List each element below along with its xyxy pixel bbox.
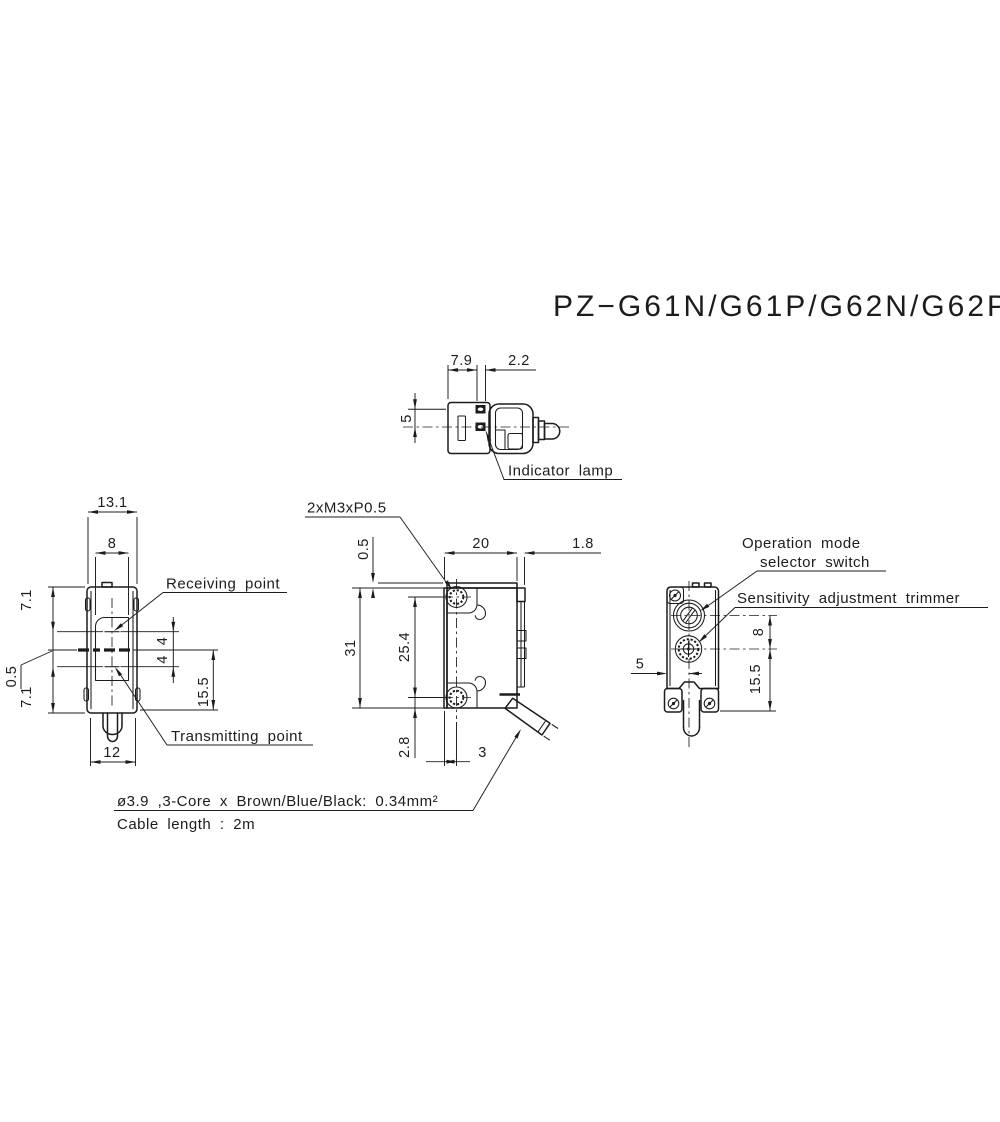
dim-25-4: 25.4 [397, 632, 413, 662]
drawing-sheet: PZ−G61N/G61P/G62N/G62P 7.9 2.2 [0, 0, 1000, 1122]
dim-2-8: 2.8 [397, 736, 413, 758]
dim-7-9: 7.9 [451, 353, 473, 369]
side-view-dimensions: 0.5 20 1.8 31 25.4 2.8 [343, 536, 601, 766]
top-view-gland-collar [533, 418, 539, 443]
dim-12: 12 [103, 745, 120, 761]
dim-5: 5 [399, 414, 415, 423]
cable-spec-text: ø3.9 ,3-Core x Brown/Blue/Black: 0.34mm² [117, 793, 438, 810]
dim-7-1-top: 7.1 [19, 589, 35, 611]
rear-view-dimensions: 5 8 15.5 [631, 616, 776, 712]
side-view: 2xM3xP0.5 0.5 20 1.8 31 [305, 500, 601, 767]
side-view-back-tab [517, 588, 525, 602]
operation-mode-label-line1: Operation mode [742, 535, 861, 552]
rear-view-cable [684, 728, 700, 737]
top-view-housing-inner [496, 408, 523, 450]
dim-15-5-front: 15.5 [196, 677, 212, 707]
top-view-cable-stub [545, 424, 560, 440]
receiving-point-callout: Receiving point [114, 576, 287, 632]
dim-7-1-bottom: 7.1 [19, 686, 35, 708]
indicator-lamp-label: Indicator lamp [508, 463, 613, 480]
dim-2-2: 2.2 [508, 353, 530, 369]
transmitting-point-label: Transmitting point [171, 728, 303, 745]
dim-31: 31 [343, 639, 359, 656]
indicator-lamp-1-lens [478, 407, 484, 411]
dim-4-upper: 4 [155, 637, 171, 646]
front-view-top-tab [102, 583, 112, 588]
cable-length-text: Cable length : 2m [117, 816, 255, 833]
operation-mode-label-line2: selector switch [760, 554, 870, 571]
rear-view-bottom-edge [667, 682, 719, 689]
dim-1-8: 1.8 [572, 536, 594, 552]
dim-3: 3 [478, 745, 487, 761]
front-view: 13.1 8 7.1 7.1 0.5 [4, 495, 313, 766]
front-view-dimensions: 13.1 8 7.1 7.1 0.5 [4, 495, 218, 766]
rear-view: 5 8 15.5 Operation mode selector switch … [631, 535, 988, 748]
front-view-cable [108, 713, 118, 742]
side-view-top-lip [447, 583, 517, 588]
top-view-housing-cutout [508, 434, 523, 450]
page-title: PZ−G61N/G61P/G62N/G62P [553, 290, 1000, 323]
receiving-point-label: Receiving point [166, 576, 280, 593]
dim-0-5-axis: 0.5 [4, 666, 20, 688]
sensitivity-label: Sensitivity adjustment trimmer [737, 590, 960, 607]
side-view-cable [505, 698, 550, 735]
top-view-gland-step [539, 421, 545, 440]
front-view-cable-collar [103, 713, 122, 735]
screw-callout: 2xM3xP0.5 [305, 500, 452, 590]
top-view-dimensions: 7.9 2.2 5 [399, 353, 536, 443]
top-view-slot [458, 416, 466, 441]
dim-13-1: 13.1 [97, 495, 127, 511]
top-view-housing-step [496, 430, 506, 450]
dimension-drawing: PZ−G61N/G61P/G62N/G62P 7.9 2.2 [0, 0, 1000, 1122]
rear-view-top-tab-1 [693, 583, 700, 587]
dim-8-rear: 8 [751, 628, 767, 637]
dim-15-5-rear: 15.5 [748, 664, 764, 694]
sensitivity-callout: Sensitivity adjustment trimmer [699, 590, 989, 643]
dim-4-lower: 4 [155, 655, 171, 664]
rear-view-top-tab-2 [705, 583, 712, 587]
dim-5-rear: 5 [636, 657, 645, 673]
dim-0-5-lip: 0.5 [356, 538, 372, 560]
dim-20: 20 [472, 536, 489, 552]
top-view: 7.9 2.2 5 Indicator lamp [399, 353, 622, 480]
screw-spec-label: 2xM3xP0.5 [307, 500, 387, 517]
dim-8: 8 [108, 536, 117, 552]
